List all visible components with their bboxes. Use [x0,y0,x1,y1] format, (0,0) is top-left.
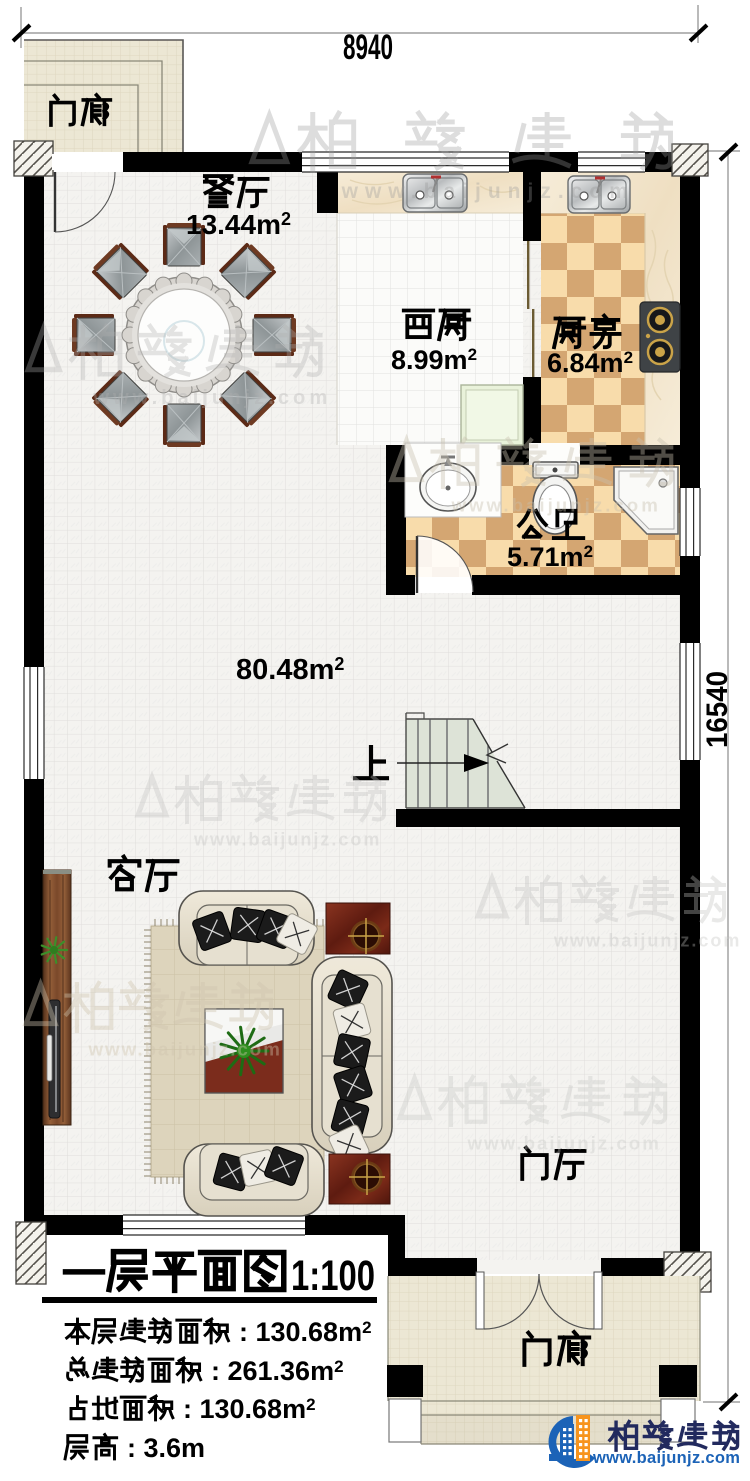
svg-text:: 130.68m2: : 130.68m2 [239,1317,372,1347]
svg-text:8940: 8940 [343,28,393,67]
svg-text:13.44m2: 13.44m2 [186,209,291,240]
svg-text:1:100: 1:100 [291,1252,375,1300]
svg-text:: 3.6m: : 3.6m [127,1433,205,1463]
svg-text:www.baijunjz.com: www.baijunjz.com [193,830,381,850]
svg-text:www.baijunjz.com: www.baijunjz.com [92,387,331,409]
svg-text:: 261.36m2: : 261.36m2 [211,1356,344,1386]
svg-text:www.baijunjz.com: www.baijunjz.com [592,1449,740,1467]
svg-text:www.baijunjz.com: www.baijunjz.com [341,180,635,203]
svg-text:www.baijunjz.com: www.baijunjz.com [466,1132,660,1153]
svg-text:www.baijunjz.com: www.baijunjz.com [450,494,660,515]
svg-text:80.48m2: 80.48m2 [236,654,344,686]
svg-text:www.baijunjz.com: www.baijunjz.com [553,931,741,951]
svg-text:8.99m2: 8.99m2 [391,345,477,375]
svg-text:16540: 16540 [701,671,734,748]
svg-text:5.71m2: 5.71m2 [507,542,593,572]
svg-text:: 130.68m2: : 130.68m2 [183,1394,316,1424]
svg-text:www.baijunjz.com: www.baijunjz.com [87,1038,281,1059]
svg-text:6.84m2: 6.84m2 [547,348,633,378]
